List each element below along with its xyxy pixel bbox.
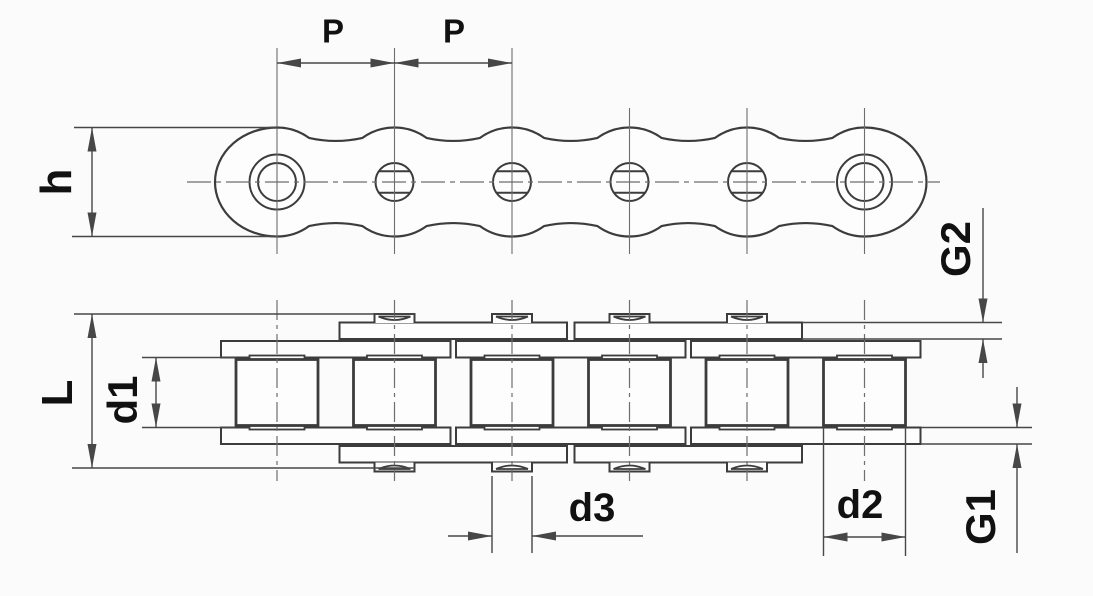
dim-label-pin-length: L <box>36 380 80 407</box>
dimension-arrowhead <box>88 128 97 152</box>
dimension-arrowhead <box>88 213 97 237</box>
dimension-arrowhead <box>371 59 395 68</box>
side-view <box>72 48 940 254</box>
roller-chain-technical-drawing: P P h L d1 d3 d2 G1 G2 <box>0 0 1093 596</box>
outer-plate-bottom <box>340 446 568 463</box>
d1-dimension <box>142 358 236 428</box>
chain-drawing-linework <box>0 0 1093 596</box>
dimension-arrowhead <box>152 358 161 382</box>
outer-plate-top <box>575 323 803 340</box>
dimension-arrowhead <box>88 314 97 338</box>
dimension-arrowhead <box>488 59 512 68</box>
dimension-arrowhead <box>532 532 556 541</box>
dimension-arrowhead <box>395 59 419 68</box>
dimension-arrowhead <box>824 533 848 542</box>
dimension-arrowhead <box>88 444 97 468</box>
dimension-arrowhead <box>979 299 988 323</box>
dim-label-pitch-right: P <box>443 15 465 48</box>
dimension-arrowhead <box>468 532 492 541</box>
dimension-arrowhead <box>882 533 906 542</box>
dimension-arrowhead <box>277 59 301 68</box>
plan-view <box>72 208 1032 556</box>
dimension-arrowhead <box>152 404 161 428</box>
dim-label-d3: d3 <box>569 488 616 528</box>
dimension-arrowhead <box>1013 404 1022 428</box>
dimension-arrowhead <box>1013 444 1022 468</box>
dimension-arrowhead <box>979 339 988 363</box>
dim-label-plate-height: h <box>35 169 79 196</box>
dim-label-d1: d1 <box>102 375 144 424</box>
dim-label-g2: G2 <box>935 221 977 277</box>
outer-plate-bottom <box>575 446 803 463</box>
dim-label-d2: d2 <box>837 485 884 525</box>
outer-plate-top <box>340 323 568 340</box>
dim-label-g1: G1 <box>960 489 1002 545</box>
dim-label-pitch-left: P <box>322 15 344 48</box>
